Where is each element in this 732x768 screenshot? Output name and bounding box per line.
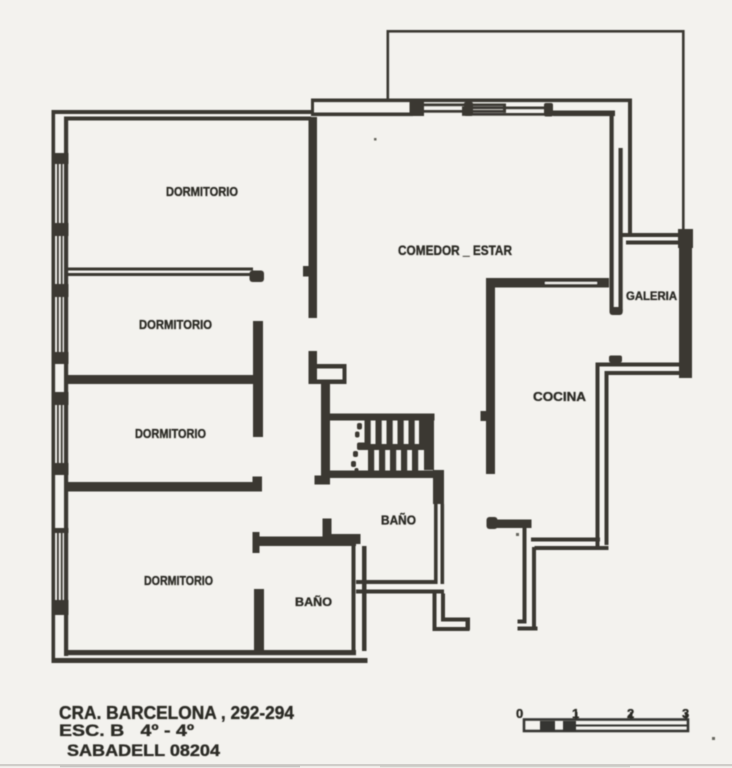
- svg-text:DORMITORIO: DORMITORIO: [139, 317, 212, 332]
- svg-text:DORMITORIO: DORMITORIO: [135, 426, 206, 441]
- svg-text:BAÑO: BAÑO: [381, 513, 416, 528]
- svg-text:GALERIA: GALERIA: [626, 291, 677, 303]
- svg-text:ESC. B 4º - 4º: ESC. B 4º - 4º: [59, 721, 194, 740]
- svg-text:COCINA: COCINA: [533, 389, 587, 404]
- svg-text:3: 3: [682, 706, 689, 721]
- svg-text:0: 0: [516, 706, 523, 721]
- svg-text:DORMITORIO: DORMITORIO: [166, 184, 238, 199]
- svg-text:SABADELL 08204: SABADELL 08204: [67, 741, 221, 760]
- svg-text:2: 2: [627, 706, 634, 721]
- svg-text:CRA. BARCELONA , 292-294: CRA. BARCELONA , 292-294: [59, 703, 294, 723]
- svg-text:COMEDOR _ ESTAR: COMEDOR _ ESTAR: [398, 243, 512, 258]
- svg-text:DORMITORIO: DORMITORIO: [144, 573, 213, 588]
- svg-text:BAÑO: BAÑO: [295, 594, 332, 609]
- svg-text:1: 1: [572, 706, 579, 721]
